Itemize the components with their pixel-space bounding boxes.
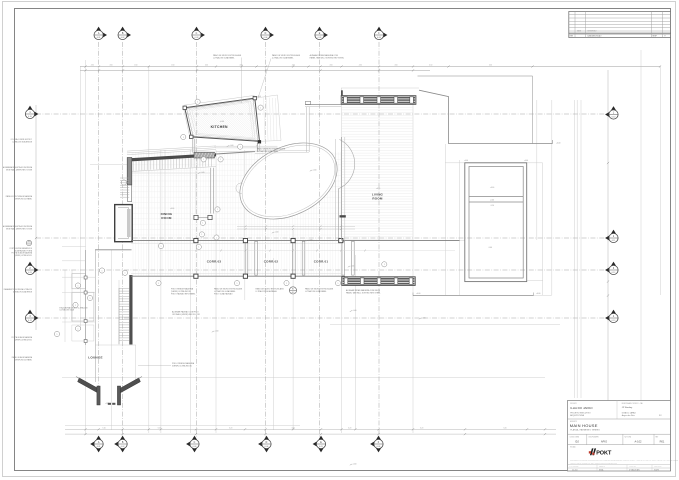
svg-text:APIO: APIO [601, 440, 607, 444]
svg-text:+0.00: +0.00 [421, 318, 425, 320]
svg-text:LOUNGE: LOUNGE [88, 356, 102, 360]
svg-text:6.20: 6.20 [229, 427, 232, 429]
svg-text:1: 1 [240, 147, 241, 149]
svg-text:+0.00: +0.00 [350, 266, 354, 268]
svg-text:78.44: 78.44 [27, 241, 31, 243]
svg-text:1: 1 [197, 102, 198, 104]
svg-text:CORR.02: CORR.02 [264, 259, 279, 263]
svg-text:A-102: A-102 [635, 440, 642, 444]
svg-text:U-TRACON GUIA PANEL: U-TRACON GUIA PANEL [257, 150, 279, 153]
svg-text:JP Stanley: JP Stanley [622, 406, 633, 409]
svg-text:1: 1 [78, 328, 79, 330]
svg-text:KITCHEN: KITCHEN [211, 125, 228, 129]
svg-text:+0.00: +0.00 [352, 310, 356, 312]
svg-text:1: 1 [260, 107, 261, 109]
svg-text:4.50: 4.50 [109, 65, 112, 67]
svg-text:6.20: 6.20 [292, 427, 295, 429]
svg-text:CORR.01: CORR.01 [314, 259, 329, 263]
svg-text:1: 1 [161, 246, 162, 248]
svg-text:EQUIPE: EQUIPE [654, 469, 659, 471]
svg-text:6.20: 6.20 [348, 427, 351, 429]
svg-text:-0.40: -0.40 [490, 200, 494, 202]
svg-text:4.50: 4.50 [239, 65, 242, 67]
svg-text:U-TRACON GUIA PANEL: U-TRACON GUIA PANEL [256, 290, 278, 293]
svg-text:+0.00: +0.00 [200, 172, 204, 174]
svg-text:4.50: 4.50 [205, 65, 208, 67]
svg-text:U-TRACON GUIA: U-TRACON GUIA [60, 309, 75, 312]
svg-text:6.05: 6.05 [319, 446, 323, 448]
svg-text:JUL 2024: JUL 2024 [572, 469, 578, 471]
svg-text:4.50: 4.50 [171, 65, 174, 67]
svg-text:PLANTA - PAVIMENTO TERREO: PLANTA - PAVIMENTO TERREO [570, 428, 600, 431]
svg-text:6.03: 6.03 [195, 37, 199, 39]
svg-text:6.01: 6.01 [97, 37, 101, 39]
svg-text:MAIN HOUSE: MAIN HOUSE [570, 423, 598, 428]
svg-text:+0.00: +0.00 [416, 293, 420, 295]
svg-text:CORR.03: CORR.03 [207, 259, 222, 263]
svg-text:U-TRACON GUIA PANEL: U-TRACON GUIA PANEL [272, 56, 294, 59]
svg-text:ILHA DO JAPAO: ILHA DO JAPAO [570, 406, 593, 410]
svg-text:6.20: 6.20 [420, 427, 423, 429]
svg-text:ORI WALL (VERIF) REV FLOOR: ORI WALL (VERIF) REV FLOOR [172, 313, 200, 316]
svg-text:R01: R01 [660, 440, 665, 444]
svg-text:-1.40: -1.40 [488, 247, 492, 249]
svg-text:U-TRACON GUIA PANEL: U-TRACON GUIA PANEL [213, 56, 235, 59]
svg-text:6.04: 6.04 [265, 446, 269, 448]
svg-text:(VERIF) ULTRA WOOD: (VERIF) ULTRA WOOD [172, 364, 193, 367]
svg-text:POKT: POKT [596, 451, 612, 457]
svg-text:6.11: 6.11 [612, 240, 616, 242]
svg-text:+0.00: +0.00 [308, 240, 312, 242]
svg-text:1: 1 [203, 159, 204, 161]
svg-text:4.50: 4.50 [134, 65, 137, 67]
svg-text:PISO: GUIA PADRAO: PISO: GUIA PADRAO [214, 292, 233, 295]
svg-text:1: 1 [125, 273, 126, 275]
svg-text:1: 1 [201, 234, 202, 236]
svg-text:1: 1 [198, 247, 199, 249]
svg-text:+0.00: +0.00 [490, 187, 494, 189]
svg-text:+0.00: +0.00 [312, 170, 316, 172]
svg-text:ARQUITETURA: ARQUITETURA [570, 414, 584, 417]
svg-text:+0.00: +0.00 [229, 145, 233, 147]
svg-text:+0.00: +0.00 [220, 121, 224, 123]
svg-text:ROOM: ROOM [161, 216, 171, 220]
svg-text:U-TRACON GUIA PANEL: U-TRACON GUIA PANEL [305, 290, 327, 293]
svg-text:4.50: 4.50 [429, 65, 432, 67]
svg-text:6.11: 6.11 [28, 272, 32, 274]
svg-text:6.01: 6.01 [97, 446, 101, 448]
svg-text:RESP: RESP [653, 35, 657, 37]
svg-text:PANEL TAM WILL SORTED REV STEE: PANEL TAM WILL SORTED REV STEEL [346, 291, 381, 294]
svg-text:+0.00: +0.00 [464, 160, 468, 162]
svg-text:6.12: 6.12 [28, 320, 32, 322]
svg-text:+0.00: +0.00 [352, 464, 356, 466]
svg-text:+0.00: +0.00 [257, 96, 261, 98]
svg-text:4.50: 4.50 [394, 65, 397, 67]
svg-text:6.06: 6.06 [377, 446, 381, 448]
svg-text:-1.10: -1.10 [490, 205, 494, 207]
svg-text:6.20: 6.20 [102, 427, 105, 429]
svg-text:REV: REV [656, 437, 659, 439]
svg-text:6.02: 6.02 [121, 446, 125, 448]
svg-text:6.05: 6.05 [318, 37, 322, 39]
svg-text:1: 1 [102, 270, 103, 272]
svg-text:6.04: 6.04 [264, 37, 268, 39]
svg-text:+0.00: +0.00 [214, 331, 218, 333]
svg-text:6.10: 6.10 [612, 117, 616, 119]
svg-text:DESENHO: DESENHO [599, 466, 605, 468]
svg-text:1: 1 [183, 137, 184, 139]
svg-text:1: 1 [78, 285, 79, 287]
svg-text:1: 1 [338, 283, 339, 285]
svg-text:1: 1 [158, 283, 159, 285]
svg-text:S1: S1 [292, 289, 294, 291]
svg-text:1: 1 [384, 264, 385, 266]
svg-text:PISO: PADRAO REV PANEL: PISO: PADRAO REV PANEL [171, 292, 195, 295]
svg-text:1: 1 [220, 159, 221, 161]
svg-text:1: 1 [57, 334, 58, 336]
svg-text:6.12: 6.12 [612, 272, 616, 274]
svg-text:6.06: 6.06 [377, 37, 381, 39]
svg-text:Angra dos Reis: Angra dos Reis [622, 414, 635, 417]
svg-text:+0.00: +0.00 [274, 232, 278, 234]
svg-text:RJ: RJ [659, 415, 661, 417]
svg-text:+0.00: +0.00 [170, 208, 174, 210]
svg-text:+0.00: +0.00 [536, 293, 540, 295]
svg-text:+0.00: +0.00 [524, 160, 528, 162]
svg-text:1: 1 [217, 209, 218, 211]
svg-text:1: 1 [286, 283, 287, 285]
svg-text:1: 1 [237, 283, 238, 285]
svg-text:1.119: 1.119 [27, 244, 31, 246]
svg-text:6.20: 6.20 [503, 427, 506, 429]
svg-text:1: 1 [216, 237, 217, 239]
svg-text:1: 1 [75, 305, 76, 307]
svg-text:+0.00: +0.00 [376, 188, 380, 190]
svg-text:PROJETO: PROJETO [570, 403, 577, 405]
svg-text:4.50: 4.50 [91, 65, 94, 67]
svg-text:6.10: 6.10 [28, 116, 32, 118]
svg-text:6.02: 6.02 [121, 37, 125, 39]
svg-text:6.03: 6.03 [193, 446, 197, 448]
svg-text:4.50: 4.50 [292, 65, 295, 67]
svg-text:+0.00: +0.00 [556, 143, 560, 145]
svg-text:PANEL TAM WILL SORTED REV STEE: PANEL TAM WILL SORTED REV STEEL [310, 56, 345, 59]
svg-text:6.13: 6.13 [612, 320, 616, 322]
svg-text:ROOM: ROOM [372, 197, 382, 201]
svg-text:1: 1 [90, 298, 91, 300]
svg-text:1: 1 [202, 223, 203, 225]
svg-text:4.50: 4.50 [489, 65, 492, 67]
svg-text:4.50: 4.50 [359, 65, 362, 67]
svg-text:6.20: 6.20 [158, 427, 161, 429]
svg-text:ILHA DO JAPAO: ILHA DO JAPAO [622, 411, 637, 414]
svg-text:4.50: 4.50 [329, 65, 332, 67]
